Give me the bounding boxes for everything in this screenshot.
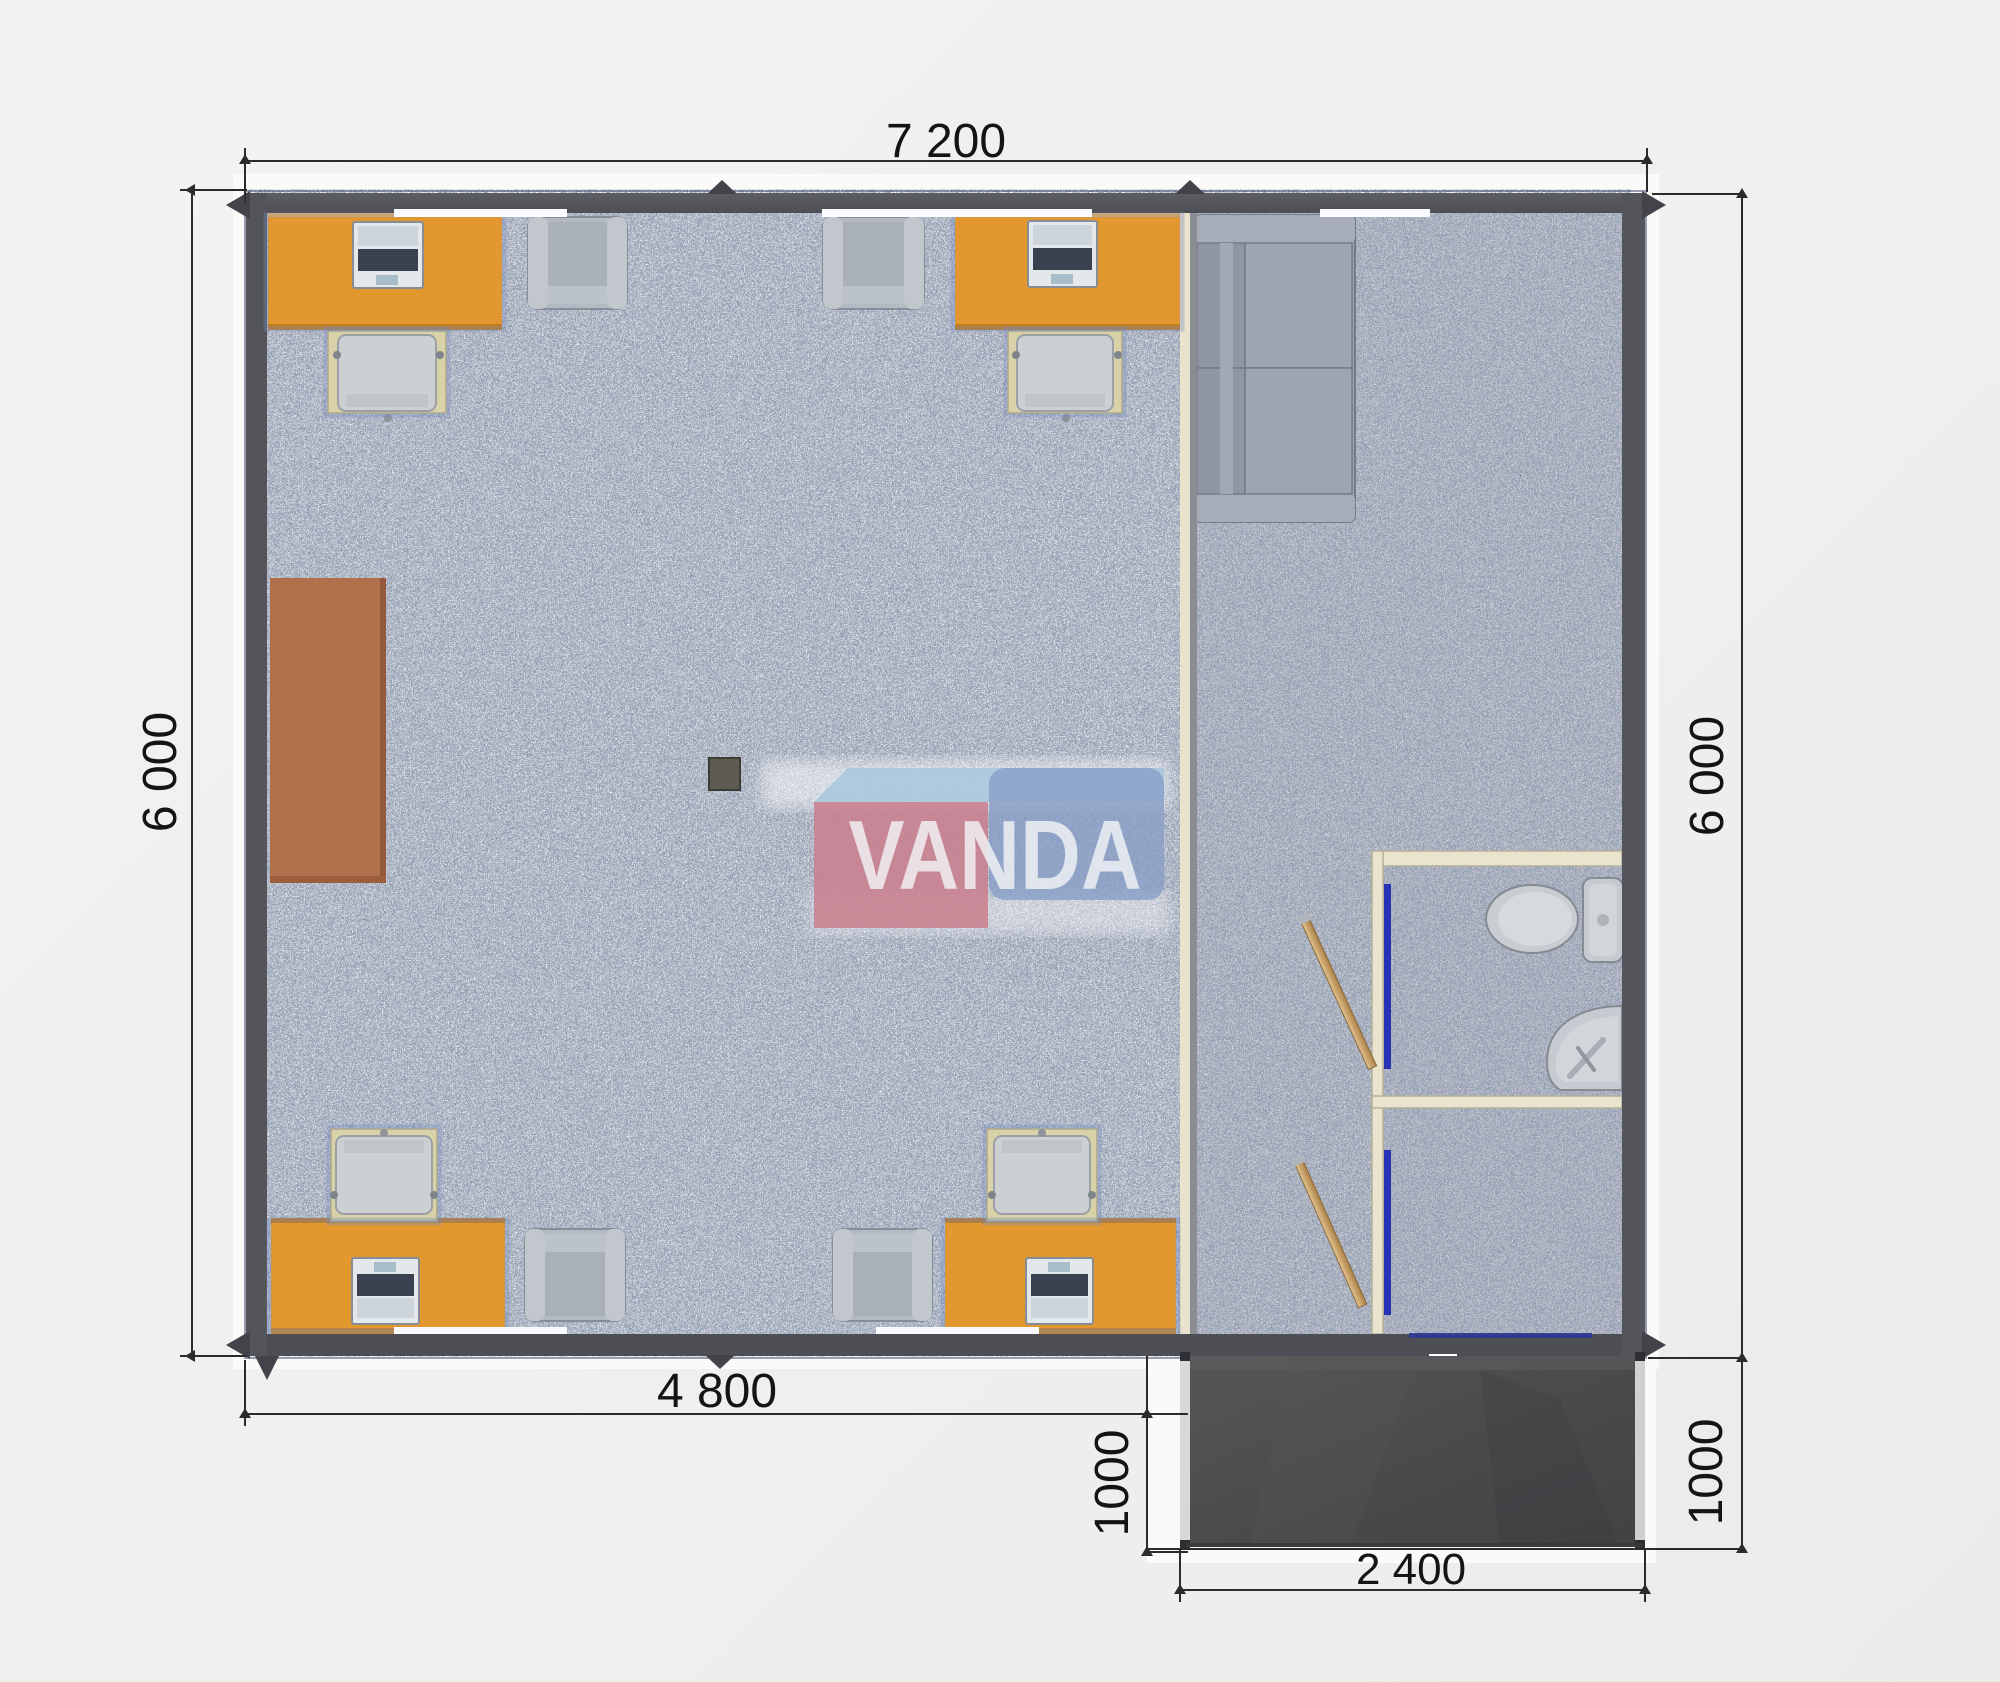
svg-text:6 000: 6 000 <box>1681 716 1734 836</box>
svg-text:6 000: 6 000 <box>134 712 187 832</box>
svg-text:1000: 1000 <box>1680 1419 1733 1526</box>
svg-text:1000: 1000 <box>1086 1430 1139 1537</box>
svg-text:7 200: 7 200 <box>886 115 1006 168</box>
svg-text:VANDA: VANDA <box>848 801 1141 910</box>
svg-text:2 400: 2 400 <box>1356 1545 1466 1594</box>
svg-text:4 800: 4 800 <box>657 1365 777 1418</box>
